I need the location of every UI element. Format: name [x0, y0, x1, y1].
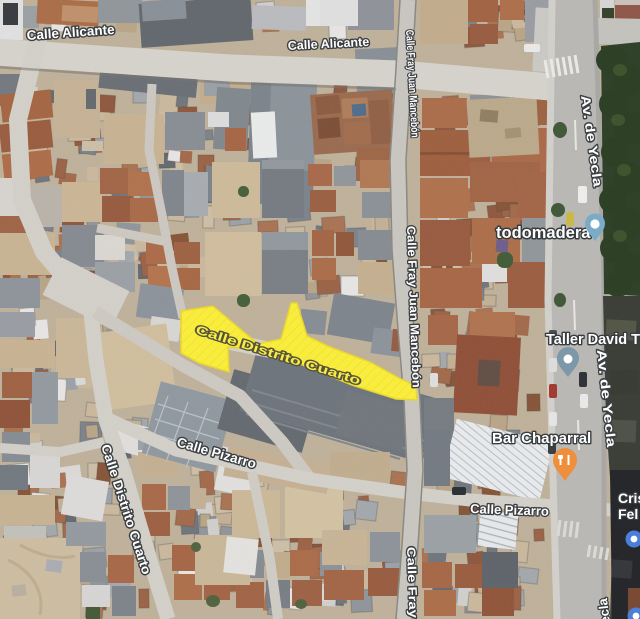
- svg-text:todomadera: todomadera: [496, 224, 591, 242]
- svg-text:Fel: Fel: [618, 506, 638, 522]
- svg-text:Calle Fray Juan: Calle Fray Juan: [404, 547, 422, 619]
- svg-text:Calle Pizarro: Calle Pizarro: [470, 501, 549, 519]
- svg-text:Cris: Cris: [618, 490, 640, 506]
- svg-text:Bar Chaparral: Bar Chaparral: [492, 430, 591, 447]
- svg-text:Taller David T: Taller David T: [546, 332, 640, 348]
